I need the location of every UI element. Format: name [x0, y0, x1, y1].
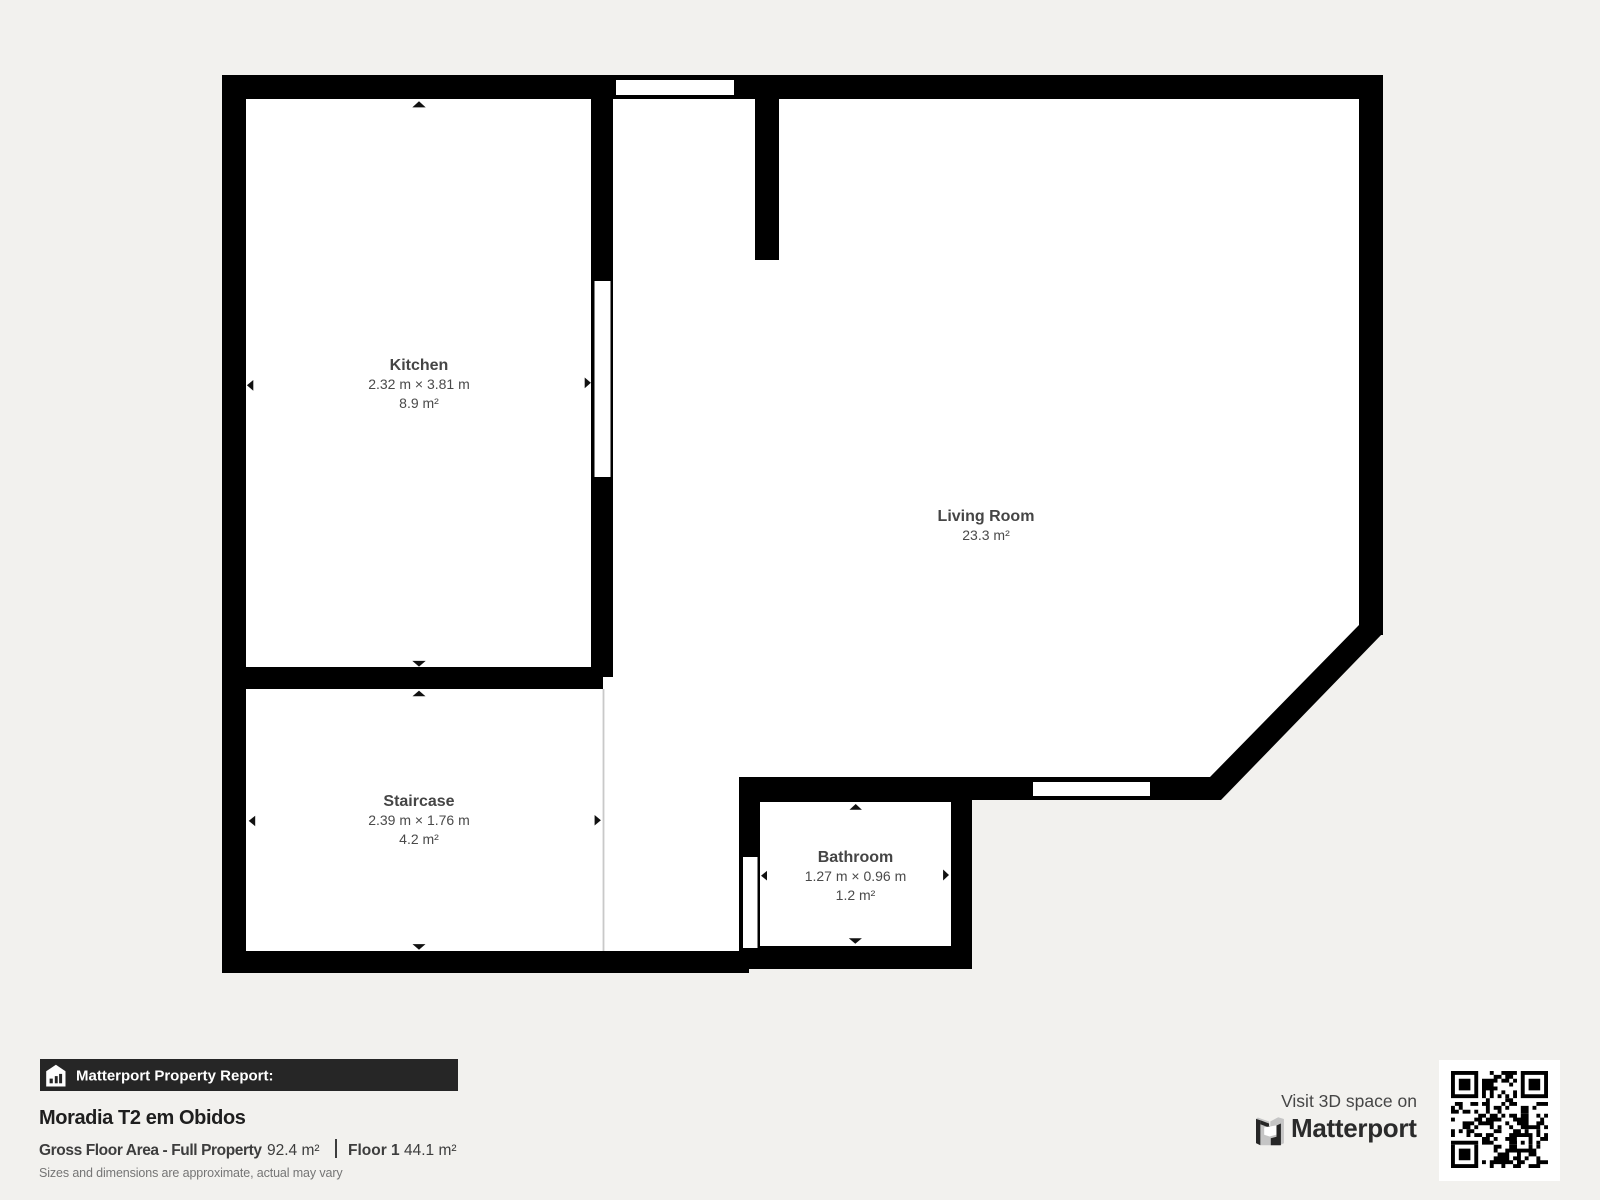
svg-text:Bathroom: Bathroom	[818, 849, 894, 866]
svg-text:Staircase: Staircase	[383, 793, 454, 810]
svg-text:4.2 m²: 4.2 m²	[399, 831, 439, 847]
svg-text:2.32 m × 3.81 m: 2.32 m × 3.81 m	[368, 376, 470, 392]
svg-text:1.27 m × 0.96 m: 1.27 m × 0.96 m	[805, 868, 907, 884]
svg-text:Living Room: Living Room	[938, 508, 1035, 525]
svg-text:Floor 1: Floor 1	[348, 1142, 400, 1159]
svg-text:23.3 m²: 23.3 m²	[962, 527, 1010, 543]
svg-text:8.9 m²: 8.9 m²	[399, 395, 439, 411]
svg-text:Moradia T2 em Obidos: Moradia T2 em Obidos	[39, 1107, 246, 1129]
svg-text:2.39 m × 1.76 m: 2.39 m × 1.76 m	[368, 812, 470, 828]
svg-text:Sizes and dimensions are appro: Sizes and dimensions are approximate, ac…	[39, 1166, 343, 1180]
svg-text:44.1 m²: 44.1 m²	[404, 1142, 457, 1159]
svg-text:Matterport Property Report:: Matterport Property Report:	[76, 1068, 274, 1085]
svg-text:Matterport: Matterport	[1291, 1113, 1417, 1143]
svg-text:Visit 3D space on: Visit 3D space on	[1281, 1091, 1417, 1111]
svg-text:Gross Floor Area - Full Proper: Gross Floor Area - Full Property	[39, 1142, 262, 1159]
svg-text:Kitchen: Kitchen	[390, 357, 449, 374]
svg-text:92.4 m²: 92.4 m²	[267, 1142, 320, 1159]
svg-text:1.2 m²: 1.2 m²	[836, 887, 876, 903]
